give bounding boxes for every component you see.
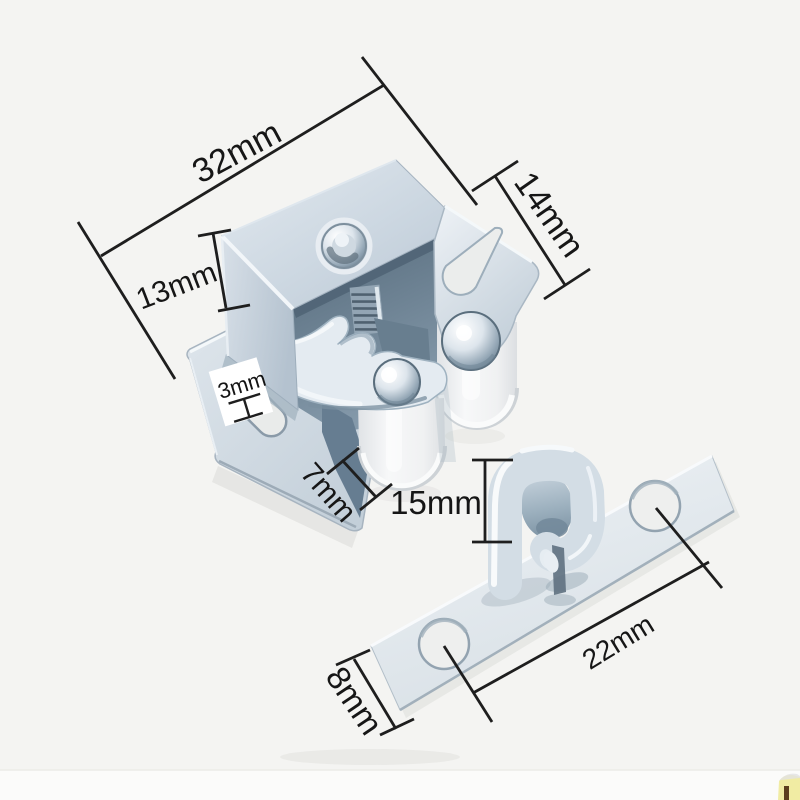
svg-text:15mm: 15mm — [390, 484, 482, 521]
